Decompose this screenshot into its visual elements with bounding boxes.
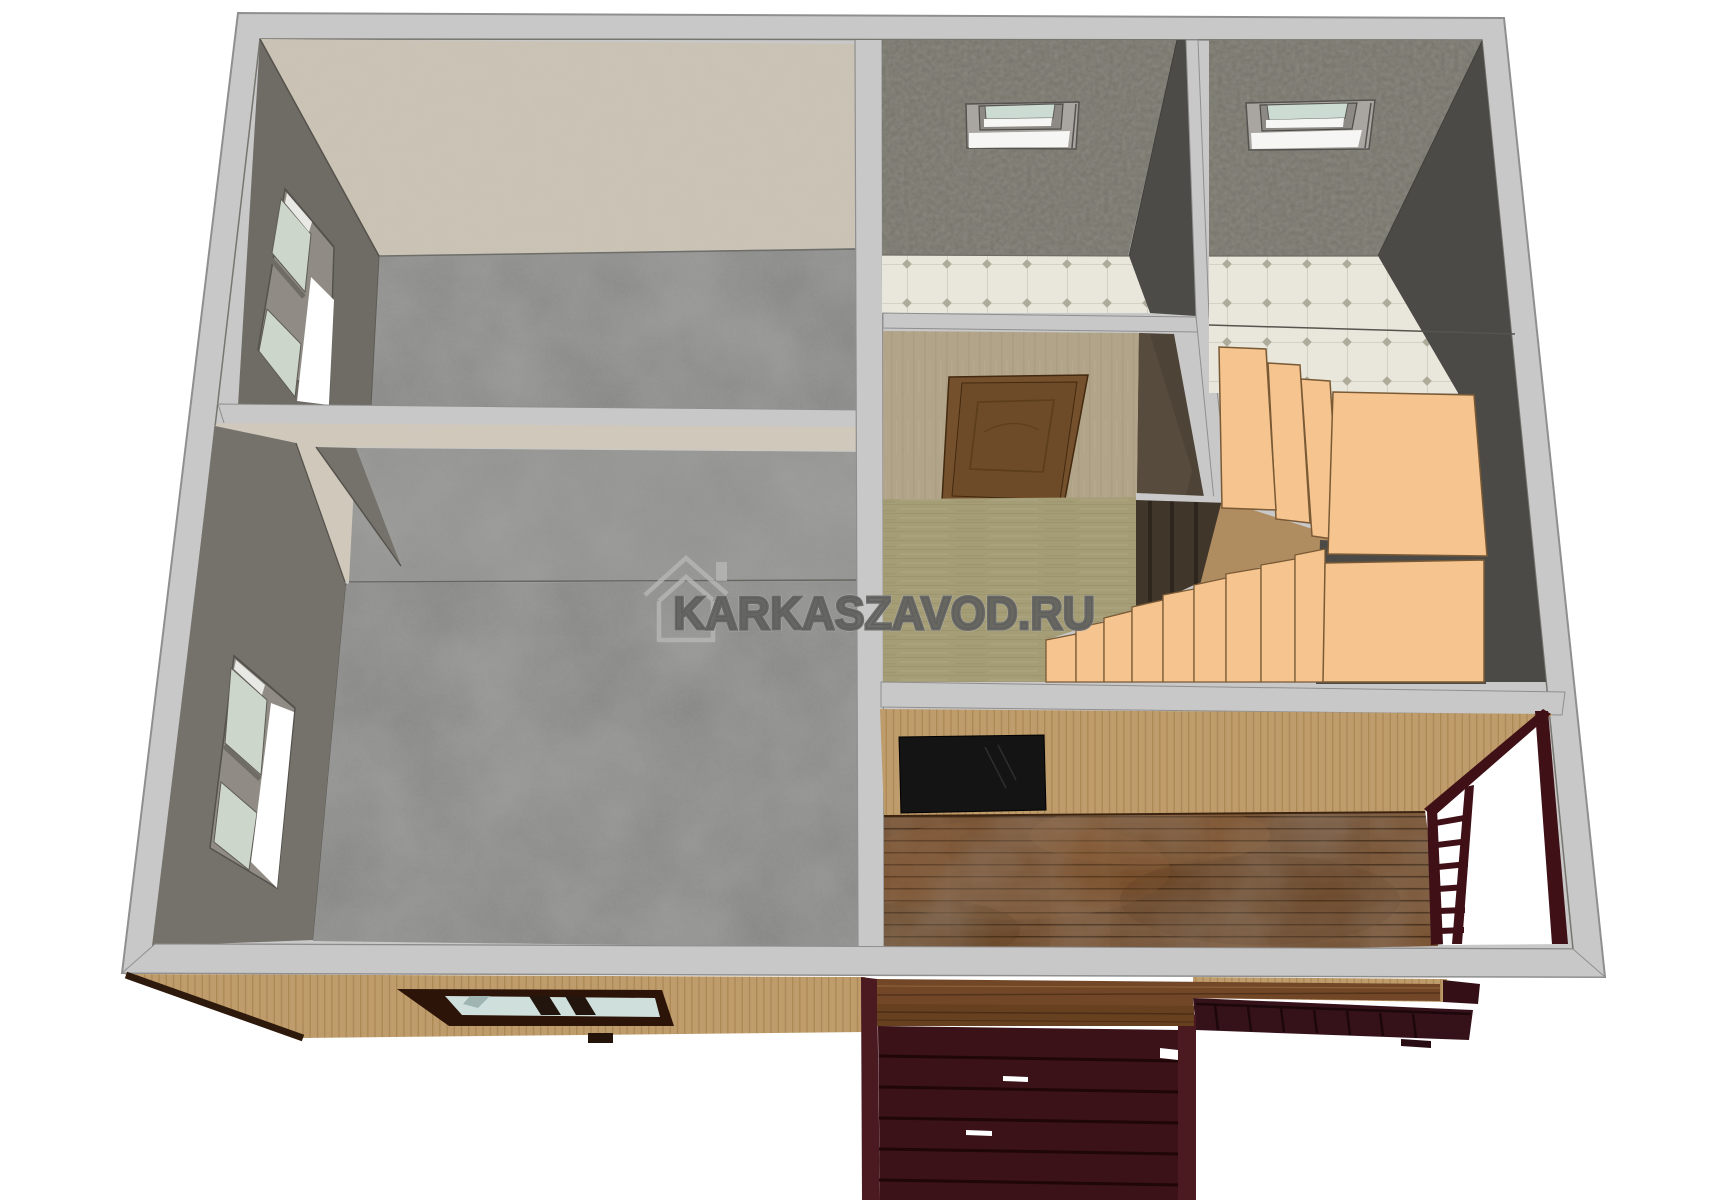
svg-text:KARKASZAVOD.RU: KARKASZAVOD.RU: [673, 587, 1095, 639]
